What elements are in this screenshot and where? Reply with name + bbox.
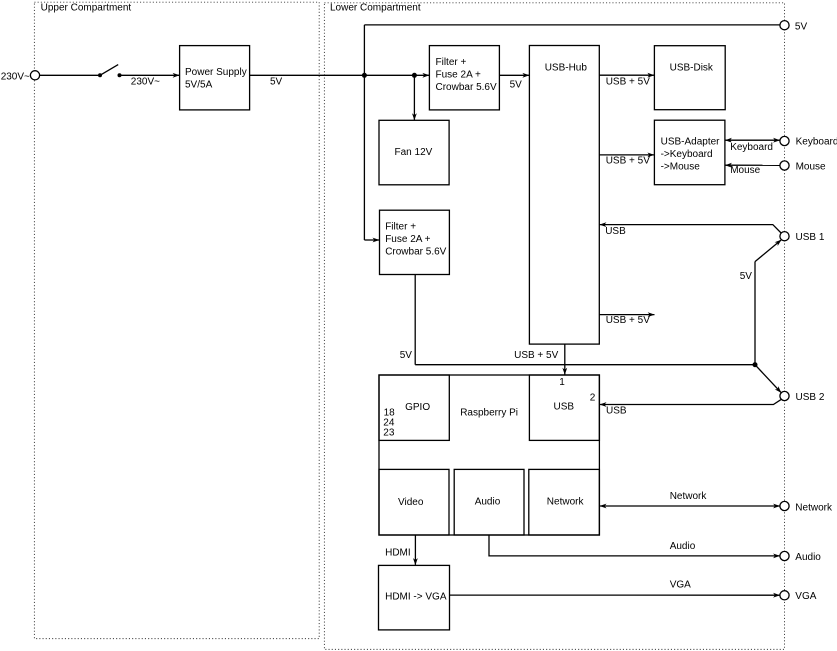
svg-text:USB 1: USB 1 <box>796 232 825 243</box>
svg-text:HDMI -> VGA: HDMI -> VGA <box>385 591 447 602</box>
svg-text:Mouse: Mouse <box>796 161 826 172</box>
svg-text:VGA: VGA <box>795 591 816 602</box>
svg-text:1: 1 <box>559 377 565 388</box>
svg-text:Filter +: Filter + <box>385 221 416 232</box>
svg-text:->Mouse: ->Mouse <box>661 162 701 173</box>
svg-text:230V~: 230V~ <box>1 71 30 82</box>
svg-text:230V~: 230V~ <box>131 77 160 88</box>
svg-text:5V: 5V <box>510 80 523 91</box>
svg-text:USB: USB <box>606 405 627 416</box>
svg-text:VGA: VGA <box>670 579 691 590</box>
svg-text:USB-Adapter: USB-Adapter <box>661 137 721 148</box>
svg-text:Audio: Audio <box>670 541 696 552</box>
svg-text:HDMI: HDMI <box>385 548 411 559</box>
svg-text:Fan 12V: Fan 12V <box>395 147 433 158</box>
svg-text:Raspberry Pi: Raspberry Pi <box>460 408 518 419</box>
svg-text:Network: Network <box>547 496 585 507</box>
svg-text:Keyboard: Keyboard <box>730 142 773 153</box>
svg-text:Keyboard: Keyboard <box>796 137 837 148</box>
svg-text:Crowbar 5.6V: Crowbar 5.6V <box>385 246 446 257</box>
svg-text:5V: 5V <box>400 350 413 361</box>
svg-text:USB-Disk: USB-Disk <box>670 62 714 73</box>
svg-text:Mouse: Mouse <box>730 165 760 176</box>
svg-text:Audio: Audio <box>475 496 501 507</box>
svg-text:USB-Hub: USB-Hub <box>545 63 588 74</box>
svg-text:Fuse 2A +: Fuse 2A + <box>385 234 430 245</box>
svg-text:Power Supply: Power Supply <box>185 67 247 78</box>
svg-text:USB + 5V: USB + 5V <box>606 76 651 87</box>
svg-text:Lower Compartment: Lower Compartment <box>330 3 421 14</box>
svg-text:Network: Network <box>795 502 833 513</box>
svg-text:Filter +: Filter + <box>436 57 467 68</box>
svg-text:5V: 5V <box>270 76 283 87</box>
svg-text:2: 2 <box>590 393 596 404</box>
svg-text:Audio: Audio <box>795 552 821 563</box>
svg-text:USB 2: USB 2 <box>796 392 825 403</box>
svg-text:USB: USB <box>554 401 575 412</box>
svg-text:->Keyboard: ->Keyboard <box>661 149 713 160</box>
svg-text:USB + 5V: USB + 5V <box>606 315 651 326</box>
svg-text:5V/5A: 5V/5A <box>185 79 213 90</box>
svg-text:USB + 5V: USB + 5V <box>606 155 651 166</box>
svg-text:Upper Compartment: Upper Compartment <box>41 3 132 14</box>
svg-text:USB + 5V: USB + 5V <box>514 350 559 361</box>
svg-text:5V: 5V <box>740 271 753 282</box>
svg-text:Network: Network <box>670 491 708 502</box>
svg-text:Crowbar 5.6V: Crowbar 5.6V <box>436 82 497 93</box>
svg-text:Video: Video <box>398 497 424 508</box>
svg-text:GPIO: GPIO <box>405 402 430 413</box>
svg-text:Fuse 2A +: Fuse 2A + <box>436 70 481 81</box>
svg-text:5V: 5V <box>795 22 808 33</box>
svg-text:USB: USB <box>605 226 626 237</box>
svg-text:23: 23 <box>383 428 395 439</box>
